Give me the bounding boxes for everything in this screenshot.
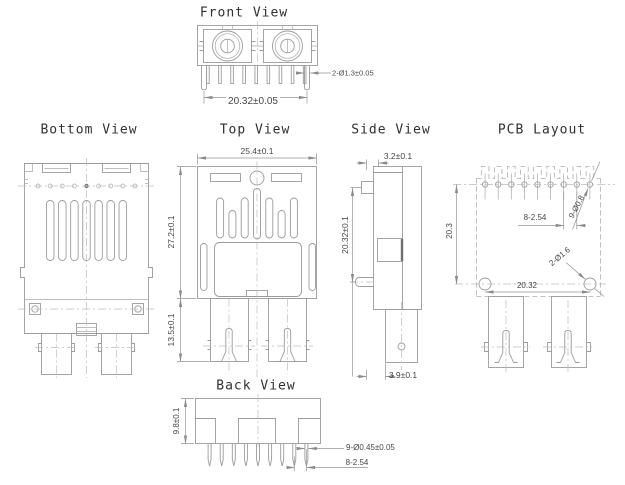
dim-pcb-horizontal-span: 20.32 <box>517 282 537 290</box>
dim-top-body-depth: 27.2±0.1 <box>167 215 176 248</box>
top-view-drawing <box>177 154 317 379</box>
back-view-drawing <box>181 394 368 471</box>
technical-drawing-page: Front View Bottom View Top View Side Vie… <box>0 0 625 485</box>
pcb-layout-title: PCB Layout <box>498 124 586 137</box>
dim-pcb-pin-pitch: 8-2.54 <box>524 214 547 222</box>
top-view-title: Top View <box>220 124 291 137</box>
dim-back-pin-diameter: 9-Ø0.45±0.05 <box>346 444 395 452</box>
dim-pcb-vertical-span: 20.3 <box>446 223 454 239</box>
dim-top-body-width: 25.4±0.1 <box>240 147 273 156</box>
drawing-canvas <box>0 0 625 485</box>
side-view-title: Side View <box>351 124 430 137</box>
front-view-drawing <box>198 22 332 104</box>
side-view-drawing <box>350 160 422 381</box>
dim-side-pin-span: 20.32±0.1 <box>341 216 350 254</box>
back-view-title: Back View <box>216 380 295 393</box>
bottom-view-drawing <box>18 158 155 378</box>
dim-top-leg-length: 13.5±0.1 <box>167 313 176 346</box>
dim-front-peg-span: 20.32±0.05 <box>226 97 280 107</box>
bottom-view-title: Bottom View <box>40 124 137 137</box>
dim-back-body-height: 9.8±0.1 <box>173 408 181 435</box>
dim-side-panel-thickness: 3.2±0.1 <box>384 152 412 161</box>
dim-back-pin-pitch: 8-2.54 <box>346 459 369 467</box>
dim-front-peg-diameter: 2-Ø1.3±0.05 <box>332 69 374 77</box>
front-view-title: Front View <box>200 7 288 20</box>
pcb-layout-drawing <box>453 162 615 373</box>
dim-side-leg-offset: 3.9±0.1 <box>389 371 417 380</box>
